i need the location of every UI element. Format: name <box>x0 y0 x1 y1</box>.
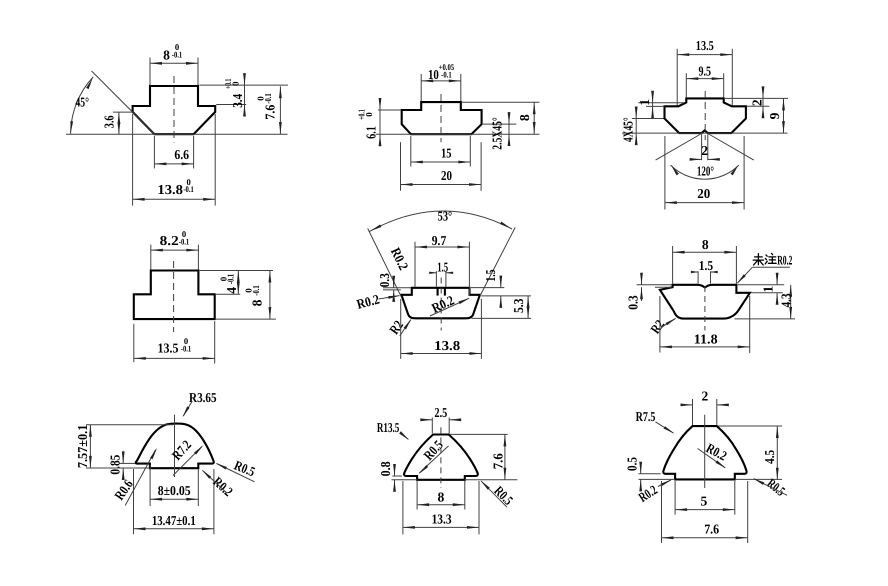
svg-text:7.6: 7.6 <box>491 453 506 469</box>
svg-text:4.3: 4.3 <box>779 293 794 307</box>
svg-text:11.8: 11.8 <box>694 331 718 346</box>
svg-text:0: 0 <box>364 112 374 117</box>
svg-text:7.6: 7.6 <box>704 521 719 536</box>
svg-text:20: 20 <box>697 186 710 201</box>
svg-text:-0.1: -0.1 <box>441 69 452 79</box>
svg-text:120°: 120° <box>697 164 714 179</box>
svg-text:R13.5: R13.5 <box>377 420 400 435</box>
svg-text:-0.1: -0.1 <box>226 273 236 284</box>
svg-text:9: 9 <box>767 112 782 119</box>
svg-text:13.8: 13.8 <box>434 338 460 353</box>
svg-text:8: 8 <box>702 237 709 252</box>
svg-text:2: 2 <box>750 99 765 106</box>
svg-text:-0.1: -0.1 <box>172 50 183 60</box>
svg-text:45°: 45° <box>75 95 89 110</box>
svg-text:1: 1 <box>637 99 652 106</box>
svg-text:1.5: 1.5 <box>437 260 448 275</box>
svg-text:2.5X45°: 2.5X45° <box>490 117 505 149</box>
svg-text:-0.1: -0.1 <box>183 184 194 194</box>
svg-text:-0.1: -0.1 <box>179 236 190 246</box>
svg-text:3.6: 3.6 <box>102 115 117 128</box>
svg-text:6.6: 6.6 <box>174 147 189 162</box>
svg-text:8: 8 <box>249 299 264 306</box>
svg-text:0.8: 0.8 <box>378 461 393 476</box>
svg-text:7.6: 7.6 <box>262 104 277 119</box>
svg-text:5: 5 <box>701 493 708 508</box>
svg-text:6.1: 6.1 <box>364 126 379 139</box>
svg-text:R7.5: R7.5 <box>636 409 656 424</box>
svg-text:20: 20 <box>441 168 452 183</box>
svg-text:R3.65: R3.65 <box>189 390 217 405</box>
svg-text:7.57±0.1: 7.57±0.1 <box>75 424 90 468</box>
svg-text:0.85: 0.85 <box>108 454 123 474</box>
svg-text:8: 8 <box>438 489 445 504</box>
svg-text:3.4: 3.4 <box>230 94 245 108</box>
svg-text:13.8: 13.8 <box>157 182 183 197</box>
svg-text:10: 10 <box>428 67 439 82</box>
svg-text:9.5: 9.5 <box>699 63 712 78</box>
svg-text:8: 8 <box>163 48 170 63</box>
svg-text:4: 4 <box>224 287 239 294</box>
svg-text:0.5: 0.5 <box>624 457 639 471</box>
svg-text:8±0.05: 8±0.05 <box>158 483 191 498</box>
svg-text:9.7: 9.7 <box>432 233 447 248</box>
svg-text:2: 2 <box>702 388 709 403</box>
svg-text:1: 1 <box>761 286 776 293</box>
svg-text:53°: 53° <box>438 208 453 223</box>
svg-text:2.5: 2.5 <box>435 405 448 420</box>
svg-text:13.5: 13.5 <box>696 38 714 53</box>
svg-text:1.5: 1.5 <box>699 258 714 273</box>
svg-text:4X45°: 4X45° <box>621 117 636 142</box>
svg-text:-0.1: -0.1 <box>251 285 261 296</box>
svg-text:13.3: 13.3 <box>432 511 452 526</box>
svg-text:8: 8 <box>517 114 532 121</box>
svg-text:13.5: 13.5 <box>158 341 179 356</box>
svg-text:-0.1: -0.1 <box>181 343 192 353</box>
svg-text:R0.2: R0.2 <box>777 253 792 268</box>
svg-text:8.2: 8.2 <box>160 233 179 248</box>
svg-text:-0.1: -0.1 <box>263 93 273 104</box>
svg-text:13.47±0.1: 13.47±0.1 <box>152 513 196 528</box>
svg-text:15: 15 <box>441 146 452 161</box>
svg-text:4.5: 4.5 <box>762 450 777 464</box>
svg-text:0: 0 <box>231 81 241 86</box>
svg-text:0.3: 0.3 <box>626 295 641 310</box>
svg-text:2: 2 <box>701 143 708 158</box>
svg-text:1.5: 1.5 <box>483 269 498 281</box>
svg-text:0.3: 0.3 <box>377 273 392 287</box>
svg-text:5.3: 5.3 <box>511 298 526 313</box>
